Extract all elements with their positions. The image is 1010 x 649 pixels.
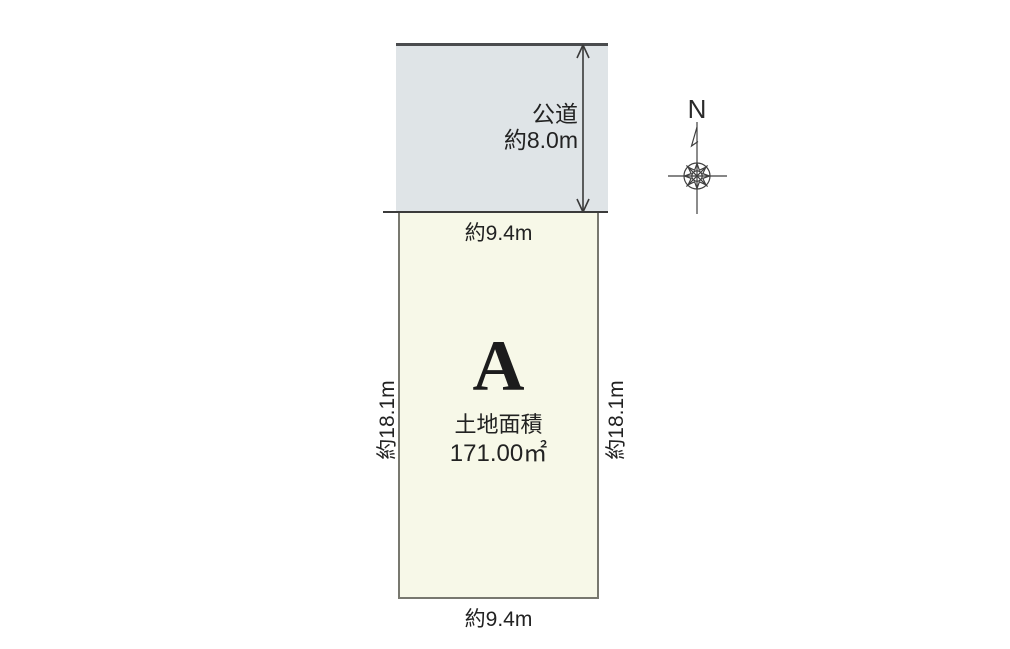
road-name: 公道 [478,101,578,127]
depth-dimension-left: 約18.1m [371,370,401,470]
road-width-dimension-arrow-icon [571,41,595,216]
frontage-dimension-bottom: 約9.4m [398,603,599,633]
plot-letter: A [398,330,599,402]
site-plan-diagram: 公道 約8.0m A 土地面積 171.00㎡ 約9.4m 約9.4m 約18.… [0,0,1010,649]
compass-rose-icon [657,118,737,218]
land-area-value: 171.00㎡ [398,433,599,468]
frontage-dimension-top: 約9.4m [398,217,599,247]
road-label: 公道 約8.0m [478,101,578,153]
road-width-value: 約8.0m [478,127,578,153]
plot-a-area [398,213,599,599]
depth-dimension-right: 約18.1m [600,370,630,470]
